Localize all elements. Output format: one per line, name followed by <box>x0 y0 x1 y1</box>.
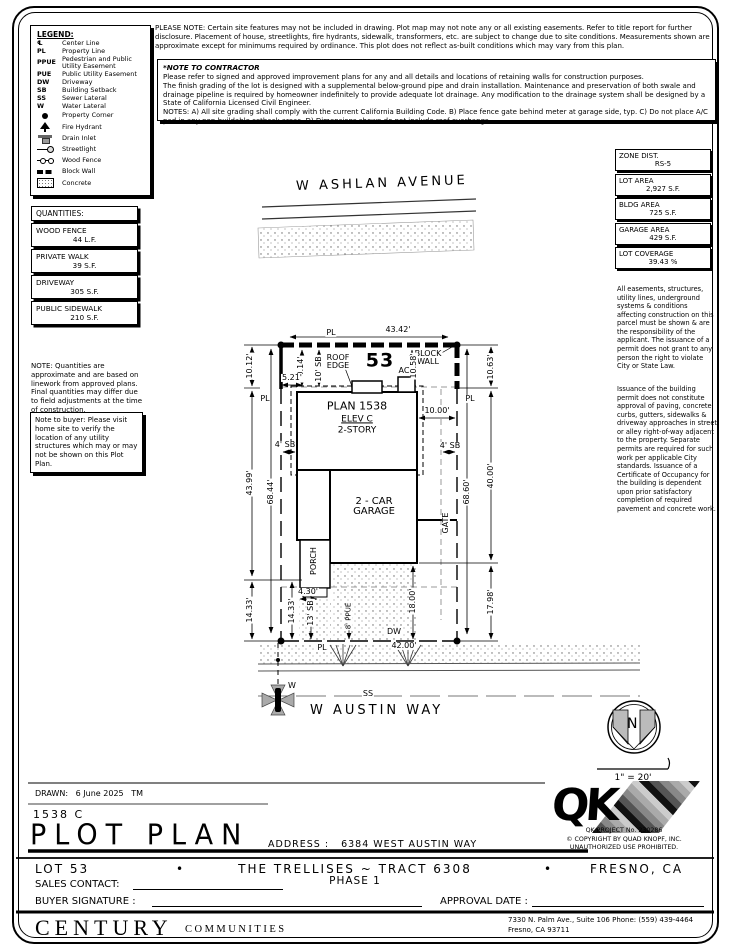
quantities-rows: WOOD FENCE44 L.F.PRIVATE WALK39 S.F.DRIV… <box>31 223 138 325</box>
brand-century: CENTURY <box>35 915 173 941</box>
legend-abbr: ℄ <box>37 40 62 47</box>
quantity-value: 44 L.F. <box>36 235 133 244</box>
plot-label: 10.12' <box>246 352 254 379</box>
plot-label: 8' PPUE <box>345 602 352 631</box>
contractor-note-p2: The finish grading of the lot is designe… <box>163 82 710 108</box>
buyer-signature-line[interactable] <box>152 896 422 907</box>
site-info-box: ZONE DIST.RS-5 <box>615 149 711 171</box>
plot-label: 4.30' <box>297 588 319 596</box>
bullet-left: • <box>176 862 183 876</box>
site-info-label: LOT AREA <box>619 177 707 185</box>
fire-hydrant-icon <box>37 122 55 132</box>
legend-item: Fire Hydrant <box>37 122 147 132</box>
sales-contact-line[interactable] <box>133 879 283 890</box>
quantity-label: PUBLIC SIDEWALK <box>36 304 133 313</box>
site-info-label: GARAGE AREA <box>619 226 707 234</box>
legend-label: Block Wall <box>62 168 147 175</box>
address-value: 6384 WEST AUSTIN WAY <box>341 839 477 850</box>
quantity-value: 39 S.F. <box>36 261 133 270</box>
legend-item: Concrete <box>37 178 147 188</box>
plot-label: 4' SB <box>439 442 461 450</box>
quantity-label: PRIVATE WALK <box>36 252 133 261</box>
approval-date-line[interactable] <box>532 896 704 907</box>
plot-label: PL <box>464 395 475 403</box>
quantity-label: DRIVEWAY <box>36 278 133 287</box>
legend-item: ℄Center Line <box>37 40 147 47</box>
legend-item: Block Wall <box>37 167 147 177</box>
site-info-panel: ZONE DIST.RS-5LOT AREA2,927 S.F.BLDG ARE… <box>615 149 711 272</box>
note-to-contractor-box: *NOTE TO CONTRACTOR Please refer to sign… <box>157 59 716 121</box>
firm-address-block: 7330 N. Palm Ave., Suite 106 Phone: (559… <box>508 916 693 936</box>
legend-label: Streetlight <box>62 146 147 153</box>
quantities-panel: QUANTITIES: WOOD FENCE44 L.F.PRIVATE WAL… <box>31 206 138 327</box>
plot-label: 17.98' <box>487 588 495 615</box>
site-info-box: LOT COVERAGE39.43 % <box>615 247 711 269</box>
plot-label: 10.00' <box>423 407 450 415</box>
right-note-1: All easements, structures, utility lines… <box>617 285 718 371</box>
plot-label: 14.33' <box>288 597 296 624</box>
roof-bump <box>352 381 382 393</box>
legend-item: SBBuilding Setback <box>37 87 147 94</box>
block-wall-icon <box>37 167 55 177</box>
plot-label: 18.00' <box>409 587 417 614</box>
legend-abbr: DW <box>37 79 62 86</box>
quantity-row: WOOD FENCE44 L.F. <box>31 223 138 247</box>
legend-abbr: PPUE <box>37 59 62 66</box>
plot-label: 43.99' <box>246 469 254 496</box>
lot-number: LOT 53 <box>35 862 89 876</box>
legend-label: Concrete <box>62 180 147 187</box>
legend-item: Wood Fence <box>37 156 147 166</box>
legend-title: LEGEND: <box>37 30 147 39</box>
buyer-signature-label: BUYER SIGNATURE : <box>35 896 136 907</box>
site-info-value: RS-5 <box>619 160 707 168</box>
legend-label: Sewer Lateral <box>62 95 147 102</box>
concrete-icon <box>37 178 55 188</box>
house-side-strip <box>297 470 330 540</box>
firm-address-line1: 7330 N. Palm Ave., Suite 106 Phone: (559… <box>508 916 693 926</box>
legend-item: PUEPublic Utility Easement <box>37 71 147 78</box>
plot-label: W <box>287 682 297 690</box>
site-info-label: BLDG AREA <box>619 201 707 209</box>
address-label: ADDRESS : <box>268 839 329 850</box>
legend-label: Drain Inlet <box>62 135 147 142</box>
drawn-row: DRAWN: 6 June 2025 TM <box>35 789 143 798</box>
site-info-label: ZONE DIST. <box>619 152 707 160</box>
quantity-row: PRIVATE WALK39 S.F. <box>31 249 138 273</box>
quantity-value: 305 S.F. <box>36 287 133 296</box>
plot-label: 14.33' <box>246 596 254 623</box>
plot-label: ROOF EDGE <box>326 354 351 370</box>
scale-bar <box>597 758 670 769</box>
plot-label: PORCH <box>310 546 318 576</box>
drawn-date: 6 June 2025 <box>76 789 124 798</box>
legend-item: DWDriveway <box>37 79 147 86</box>
site-info-label: LOT COVERAGE <box>619 250 707 258</box>
plot-label: 2-STORY <box>337 426 377 435</box>
plot-label: PLAN 1538 <box>326 400 388 411</box>
buyer-note-box: Note to buyer: Please visit home site to… <box>30 412 143 473</box>
wood-fence-icon <box>37 156 55 166</box>
brand-communities: COMMUNITIES <box>185 924 287 935</box>
quantities-title: QUANTITIES: <box>31 206 138 221</box>
plot-label: 13' SB <box>307 599 315 627</box>
quantity-label: WOOD FENCE <box>36 226 133 235</box>
legend-item: Property Corner <box>37 111 147 121</box>
plot-label: 5.21' <box>281 374 303 382</box>
plot-label: DW <box>386 628 402 636</box>
legend-label: Wood Fence <box>62 157 147 164</box>
quantities-note: NOTE: Quantities are approximate and are… <box>31 362 143 415</box>
firm-address-line2: Fresno, CA 93711 <box>508 926 693 936</box>
street-bottom-lines <box>258 663 640 696</box>
drain-inlet-icon <box>37 133 55 143</box>
plot-label: 43.42' <box>384 326 411 334</box>
plot-label: ELEV C <box>340 415 374 424</box>
plot-label: PL <box>325 329 336 337</box>
street-name-bottom: W AUSTIN WAY <box>310 703 443 718</box>
site-info-box: GARAGE AREA429 S.F. <box>615 223 711 245</box>
legend-label: Building Setback <box>62 87 147 94</box>
qk-unauthorized: UNAUTHORIZED USE PROHIBITED. <box>540 844 708 853</box>
legend-item: Streetlight <box>37 144 147 154</box>
legend-item: Drain Inlet <box>37 133 147 143</box>
plot-label: GATE <box>442 512 450 535</box>
legend-label: Center Line <box>62 40 147 47</box>
parkway-concrete <box>258 644 640 664</box>
legend-label: Property Line <box>62 48 147 55</box>
plot-label: PL <box>259 395 270 403</box>
site-info-value: 429 S.F. <box>619 234 707 242</box>
legend-item: PLProperty Line <box>37 48 147 55</box>
quantity-row: DRIVEWAY305 S.F. <box>31 275 138 299</box>
bullet-right: • <box>544 862 551 876</box>
sales-contact-label: SALES CONTACT: <box>35 879 119 890</box>
legend-label: Public Utility Easement <box>62 71 147 78</box>
property-corner-icon <box>37 111 55 121</box>
plot-label: SS <box>362 690 374 698</box>
qk-credits: QK PROJECT No. 230286 © COPYRIGHT BY QUA… <box>540 827 708 853</box>
plot-label: PL <box>316 644 327 652</box>
city-name: FRESNO, CA <box>590 862 683 876</box>
site-info-value: 725 S.F. <box>619 209 707 217</box>
site-info-box: BLDG AREA725 S.F. <box>615 198 711 220</box>
legend-abbr: SS <box>37 95 62 102</box>
legend-label: Fire Hydrant <box>62 124 147 131</box>
legend-label: Pedestrian and Public Utility Easement <box>62 56 147 70</box>
approval-date-label: APPROVAL DATE : <box>440 896 528 907</box>
contractor-note-p1: Please refer to signed and approved impr… <box>163 73 710 82</box>
plot-label: 40.00' <box>487 462 495 489</box>
legend-label: Driveway <box>62 79 147 86</box>
plot-label: 10' SB <box>315 355 323 383</box>
legend-rows: ℄Center LinePLProperty LinePPUEPedestria… <box>37 40 147 188</box>
quantity-row: PUBLIC SIDEWALK210 S.F. <box>31 301 138 325</box>
sheet-title: PLOT PLAN <box>30 819 249 852</box>
qk-logo-text: QK <box>550 780 617 831</box>
legend-label: Water Lateral <box>62 103 147 110</box>
legend-label: Property Corner <box>62 112 147 119</box>
plot-label: 10.58' <box>410 352 418 379</box>
streetlight-icon <box>37 144 55 154</box>
plot-label: 68.60' <box>463 478 471 505</box>
qk-copyright: © COPYRIGHT BY QUAD KNOPF, INC. <box>540 836 708 845</box>
drawn-label: DRAWN: <box>35 789 68 798</box>
contractor-note-p3: NOTES: A) All site grading shall comply … <box>163 108 710 126</box>
site-info-value: 39.43 % <box>619 258 707 266</box>
legend-panel: LEGEND: ℄Center LinePLProperty LinePPUEP… <box>30 25 151 196</box>
legend-abbr: SB <box>37 87 62 94</box>
legend-item: WWater Lateral <box>37 103 147 110</box>
plot-label: 2 - CAR GARAGE <box>352 497 396 517</box>
legend-item: SSSewer Lateral <box>37 95 147 102</box>
site-info-value: 2,927 S.F. <box>619 185 707 193</box>
plot-label: 42.00' <box>390 642 417 650</box>
north-letter: N <box>627 716 637 732</box>
tract-name: THE TRELLISES ~ TRACT 6308 <box>185 862 525 876</box>
drawn-by: TM <box>131 789 143 798</box>
plot-label: 53 <box>365 351 395 370</box>
plot-label: 68.44' <box>267 478 275 505</box>
contractor-note-title: *NOTE TO CONTRACTOR <box>163 63 710 72</box>
plot-label: 4' SB <box>274 441 296 449</box>
plot-label: 10.63' <box>487 353 495 380</box>
street-top-lines <box>258 199 476 258</box>
please-note-text: PLEASE NOTE: Certain site features may n… <box>155 24 718 50</box>
legend-abbr: PUE <box>37 71 62 78</box>
quantity-value: 210 S.F. <box>36 313 133 322</box>
legend-abbr: PL <box>37 48 62 55</box>
address-row: ADDRESS : 6384 WEST AUSTIN WAY <box>268 839 477 850</box>
site-info-box: LOT AREA2,927 S.F. <box>615 174 711 196</box>
legend-item: PPUEPedestrian and Public Utility Easeme… <box>37 56 147 70</box>
right-note-2: Issuance of the building permit does not… <box>617 385 718 513</box>
legend-abbr: W <box>37 103 62 110</box>
qk-project-number: QK PROJECT No. 230286 <box>540 827 708 836</box>
